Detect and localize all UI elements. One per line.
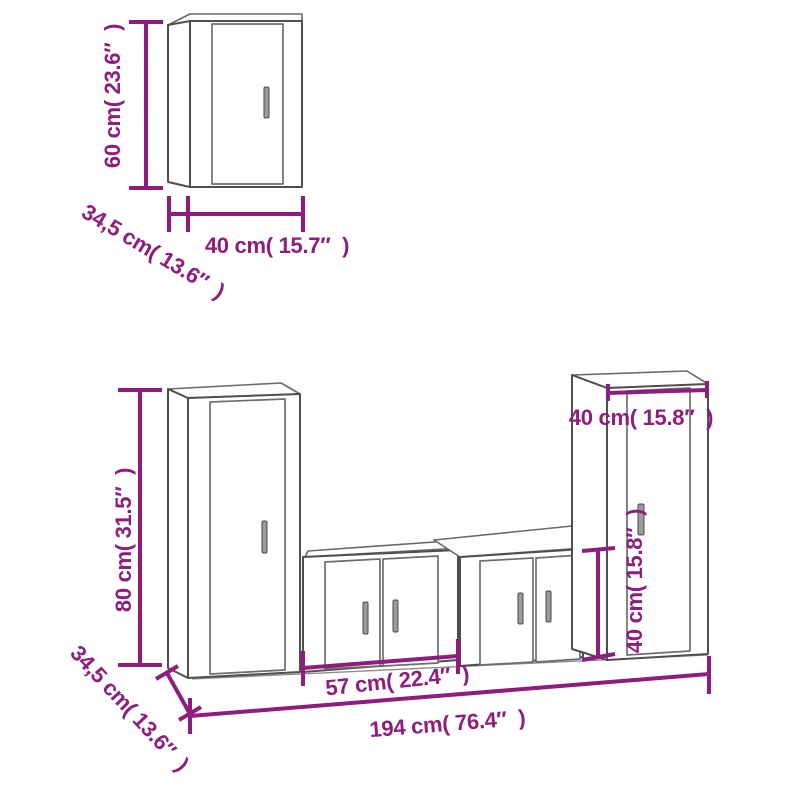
tall-cabinet-left-door xyxy=(210,399,285,674)
set-height-label: 80 cm( 31.5″ ) xyxy=(111,468,136,612)
set-depth-dimension-line xyxy=(167,673,190,714)
low-cabinet-2-handle-right xyxy=(546,591,551,622)
total-width-label: 194 cm( 76.4″ ) xyxy=(369,705,527,742)
top-height-label: 60 cm( 23.6″ ) xyxy=(100,24,125,168)
low-cabinet-1 xyxy=(303,540,462,672)
furniture-dimension-diagram: 60 cm( 23.6″ ) 40 cm( 15.7″ ) 34,5 cm( 1… xyxy=(0,0,800,800)
low-cabinet-1-handle-right xyxy=(393,600,398,632)
top-width-label: 40 cm( 15.7″ ) xyxy=(205,233,349,258)
low-cabinet-2-handle-left xyxy=(518,593,523,624)
right-width-label: 40 cm( 15.8″ ) xyxy=(569,405,713,430)
wall-cabinet-handle xyxy=(264,87,269,118)
low-cabinet-2-door-left xyxy=(480,558,533,665)
tv-cabinet-set-diagram: 80 cm( 31.5″ ) 34,5 cm( 13.6″ ) 57 cm( 2… xyxy=(65,371,713,776)
wall-cabinet-diagram: 60 cm( 23.6″ ) 40 cm( 15.7″ ) 34,5 cm( 1… xyxy=(77,14,349,304)
low-cabinet-1-door-left xyxy=(325,559,380,669)
dimension-diagram-page: 60 cm( 23.6″ ) 40 cm( 15.7″ ) 34,5 cm( 1… xyxy=(0,0,800,800)
wall-cabinet-side-face xyxy=(168,21,190,187)
tall-cabinet-left-side-face xyxy=(168,389,188,678)
right-height-label: 40 cm( 15.8″ ) xyxy=(622,509,647,653)
tall-cabinet-left-handle xyxy=(262,521,267,553)
tall-cabinet-left xyxy=(168,383,300,678)
wall-cabinet-door xyxy=(212,24,283,184)
low-cabinet-1-handle-left xyxy=(363,602,368,634)
low-cabinet-1-door-right xyxy=(383,556,438,666)
